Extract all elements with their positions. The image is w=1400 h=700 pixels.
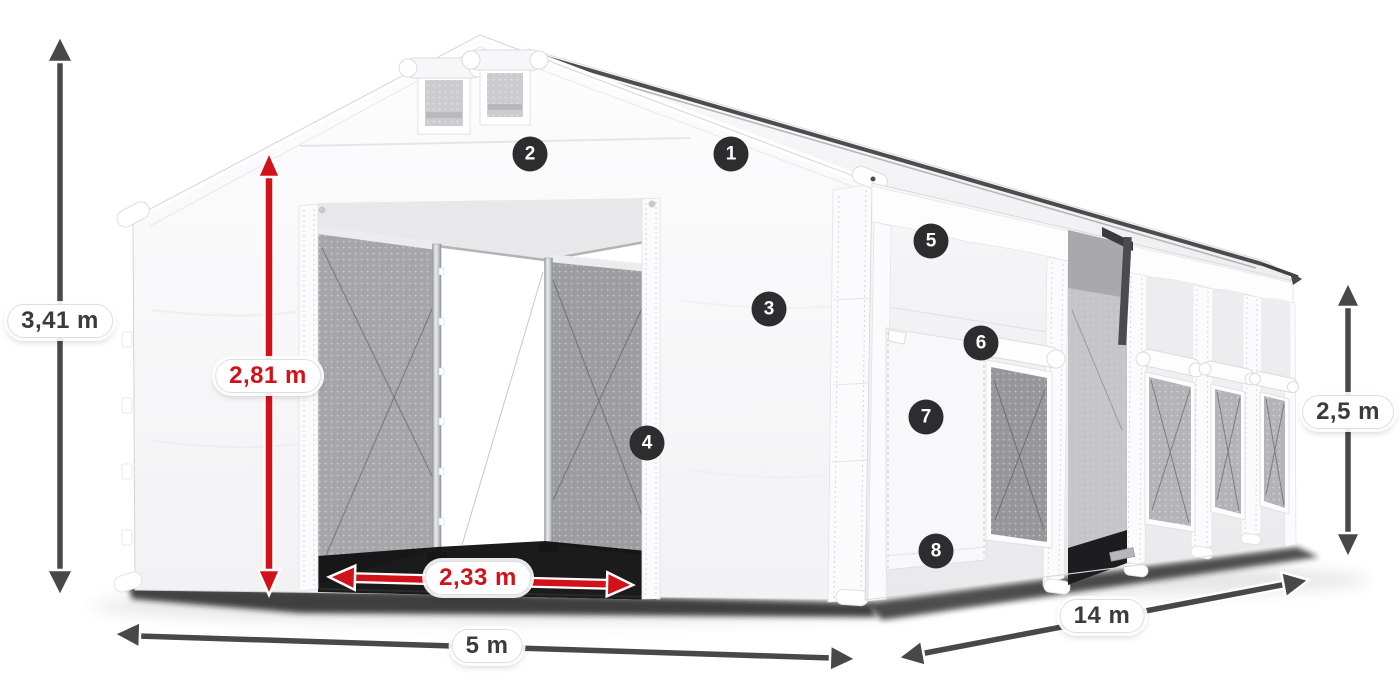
front-door-opening — [299, 198, 660, 600]
mesh-partition-right — [538, 254, 657, 560]
partition-pole — [433, 244, 442, 558]
dimension-label-side-length: 14 m — [1060, 599, 1145, 633]
corner-band-front — [828, 184, 872, 602]
dimension-label-door-width: 2,33 m — [425, 561, 531, 595]
dimension-label-side-height: 2,5 m — [1302, 395, 1394, 429]
hotspot-badge-8[interactable]: 8 — [919, 534, 954, 569]
hotspot-badge-4[interactable]: 4 — [630, 426, 665, 461]
hotspot-badge-3[interactable]: 3 — [752, 292, 787, 327]
mesh-partition-left — [318, 226, 448, 584]
hotspot-badge-7[interactable]: 7 — [909, 400, 944, 435]
hotspot-badge-2[interactable]: 2 — [513, 137, 548, 172]
skirt-flap — [835, 589, 868, 606]
side-window-bay3 — [1211, 384, 1245, 520]
door-pull-tab — [888, 330, 906, 344]
side-window-bay1 — [979, 336, 1065, 548]
dimension-label-total-height: 3,41 m — [7, 304, 113, 338]
side-window-bay2 — [1145, 372, 1195, 532]
tent-dimension-diagram: 3,41 m 2,81 m 2,33 m 5 m 14 m 2,5 m 1 2 … — [0, 0, 1400, 700]
hotspot-badge-6[interactable]: 6 — [964, 326, 999, 361]
side-door-opening — [1068, 227, 1135, 585]
side-window-bay4 — [1260, 392, 1289, 514]
dimension-label-gable-width: 5 m — [452, 629, 523, 663]
hotspot-badge-1[interactable]: 1 — [714, 137, 749, 172]
tent-illustration — [0, 0, 1400, 700]
dimension-label-door-height: 2,81 m — [215, 359, 321, 393]
partition-pole — [545, 258, 553, 548]
wall-strap-tabs — [122, 332, 132, 545]
hotspot-badge-5[interactable]: 5 — [914, 224, 949, 259]
